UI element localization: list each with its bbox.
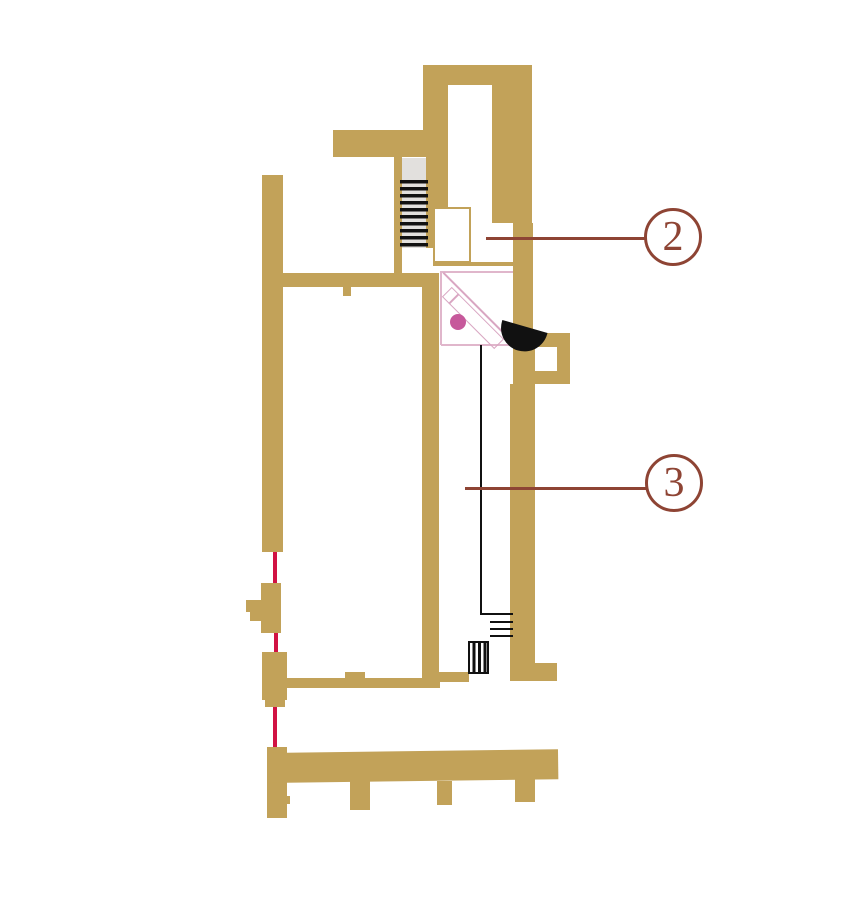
callout-3-label: 3: [664, 462, 685, 504]
step-hatch-lines: [490, 621, 513, 638]
callout-2-label: 2: [663, 216, 684, 258]
wall-bottom-pillar-foot: [283, 796, 290, 804]
wall-right-upper: [492, 85, 532, 223]
wall-bottom-horizontal: [280, 678, 440, 688]
wall-buttress-2: [437, 781, 452, 805]
section-line-2: [274, 633, 278, 652]
wall-left-block-3: [262, 652, 287, 700]
staircase-treads: [400, 180, 428, 250]
wall-upper-horizontal: [333, 130, 433, 157]
pink-marker-dot: [450, 314, 466, 330]
wall-left-protrusion: [246, 600, 261, 612]
callout-3-leader: [465, 487, 646, 490]
wall-buttress-3: [515, 777, 535, 802]
wall-left-block-3-tip: [265, 697, 285, 707]
wall-tower-top-bar: [423, 65, 532, 85]
wall-alcove-right: [557, 347, 570, 371]
wall-strip-to-grate: [439, 672, 469, 682]
section-line-3: [273, 707, 277, 747]
section-line-1: [273, 552, 277, 583]
wall-corridor-vertical: [422, 273, 439, 688]
wall-alcove-bottom: [535, 371, 570, 384]
wall-right-lower-foot: [510, 663, 557, 681]
wall-middle-horizontal: [280, 273, 437, 287]
survey-line-horizontal: [480, 613, 513, 615]
wall-left-protrusion-2: [250, 612, 261, 621]
wall-buttress-1: [350, 781, 370, 810]
wall-middle-stub: [343, 287, 351, 296]
callout-2-marker[interactable]: 2: [644, 208, 702, 266]
callout-2-leader: [486, 237, 645, 240]
wall-right-lower: [510, 384, 535, 665]
callout-3-marker[interactable]: 3: [645, 454, 703, 512]
wall-left-block-2: [261, 583, 281, 633]
survey-line-vertical: [480, 345, 482, 615]
wall-bottom-stub-top: [345, 672, 365, 678]
pink-room-top-line: [440, 271, 513, 273]
floor-plan: 2 3: [0, 0, 850, 900]
door-panel: [433, 207, 471, 263]
wall-left-long: [262, 175, 283, 552]
wall-above-door: [433, 152, 448, 207]
grate-box: [468, 641, 489, 674]
